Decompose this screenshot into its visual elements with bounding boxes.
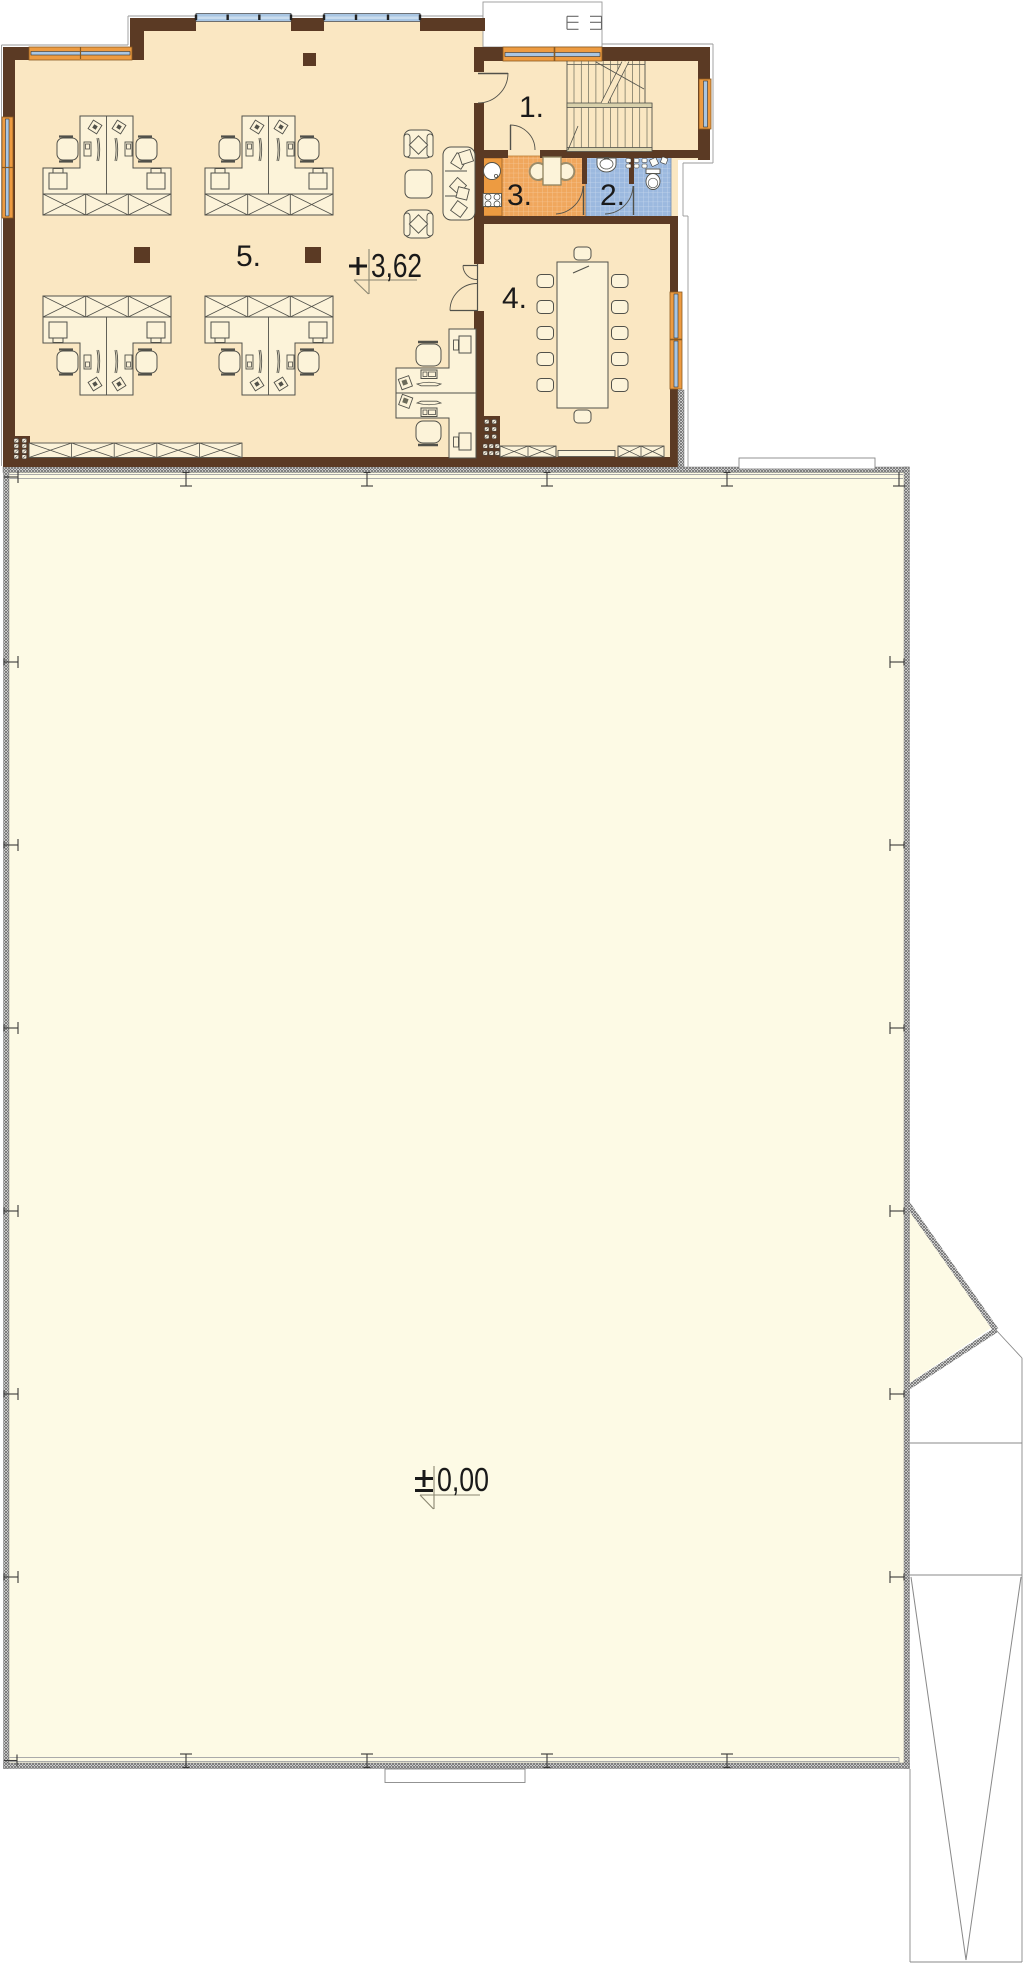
svg-text:5.: 5. [236,240,261,273]
svg-text:3,62: 3,62 [371,247,422,284]
svg-text:3.: 3. [507,179,532,212]
svg-text:2.: 2. [600,179,625,212]
svg-text:0,00: 0,00 [437,1461,489,1498]
svg-text:4.: 4. [502,282,527,315]
svg-text:1.: 1. [519,91,544,124]
